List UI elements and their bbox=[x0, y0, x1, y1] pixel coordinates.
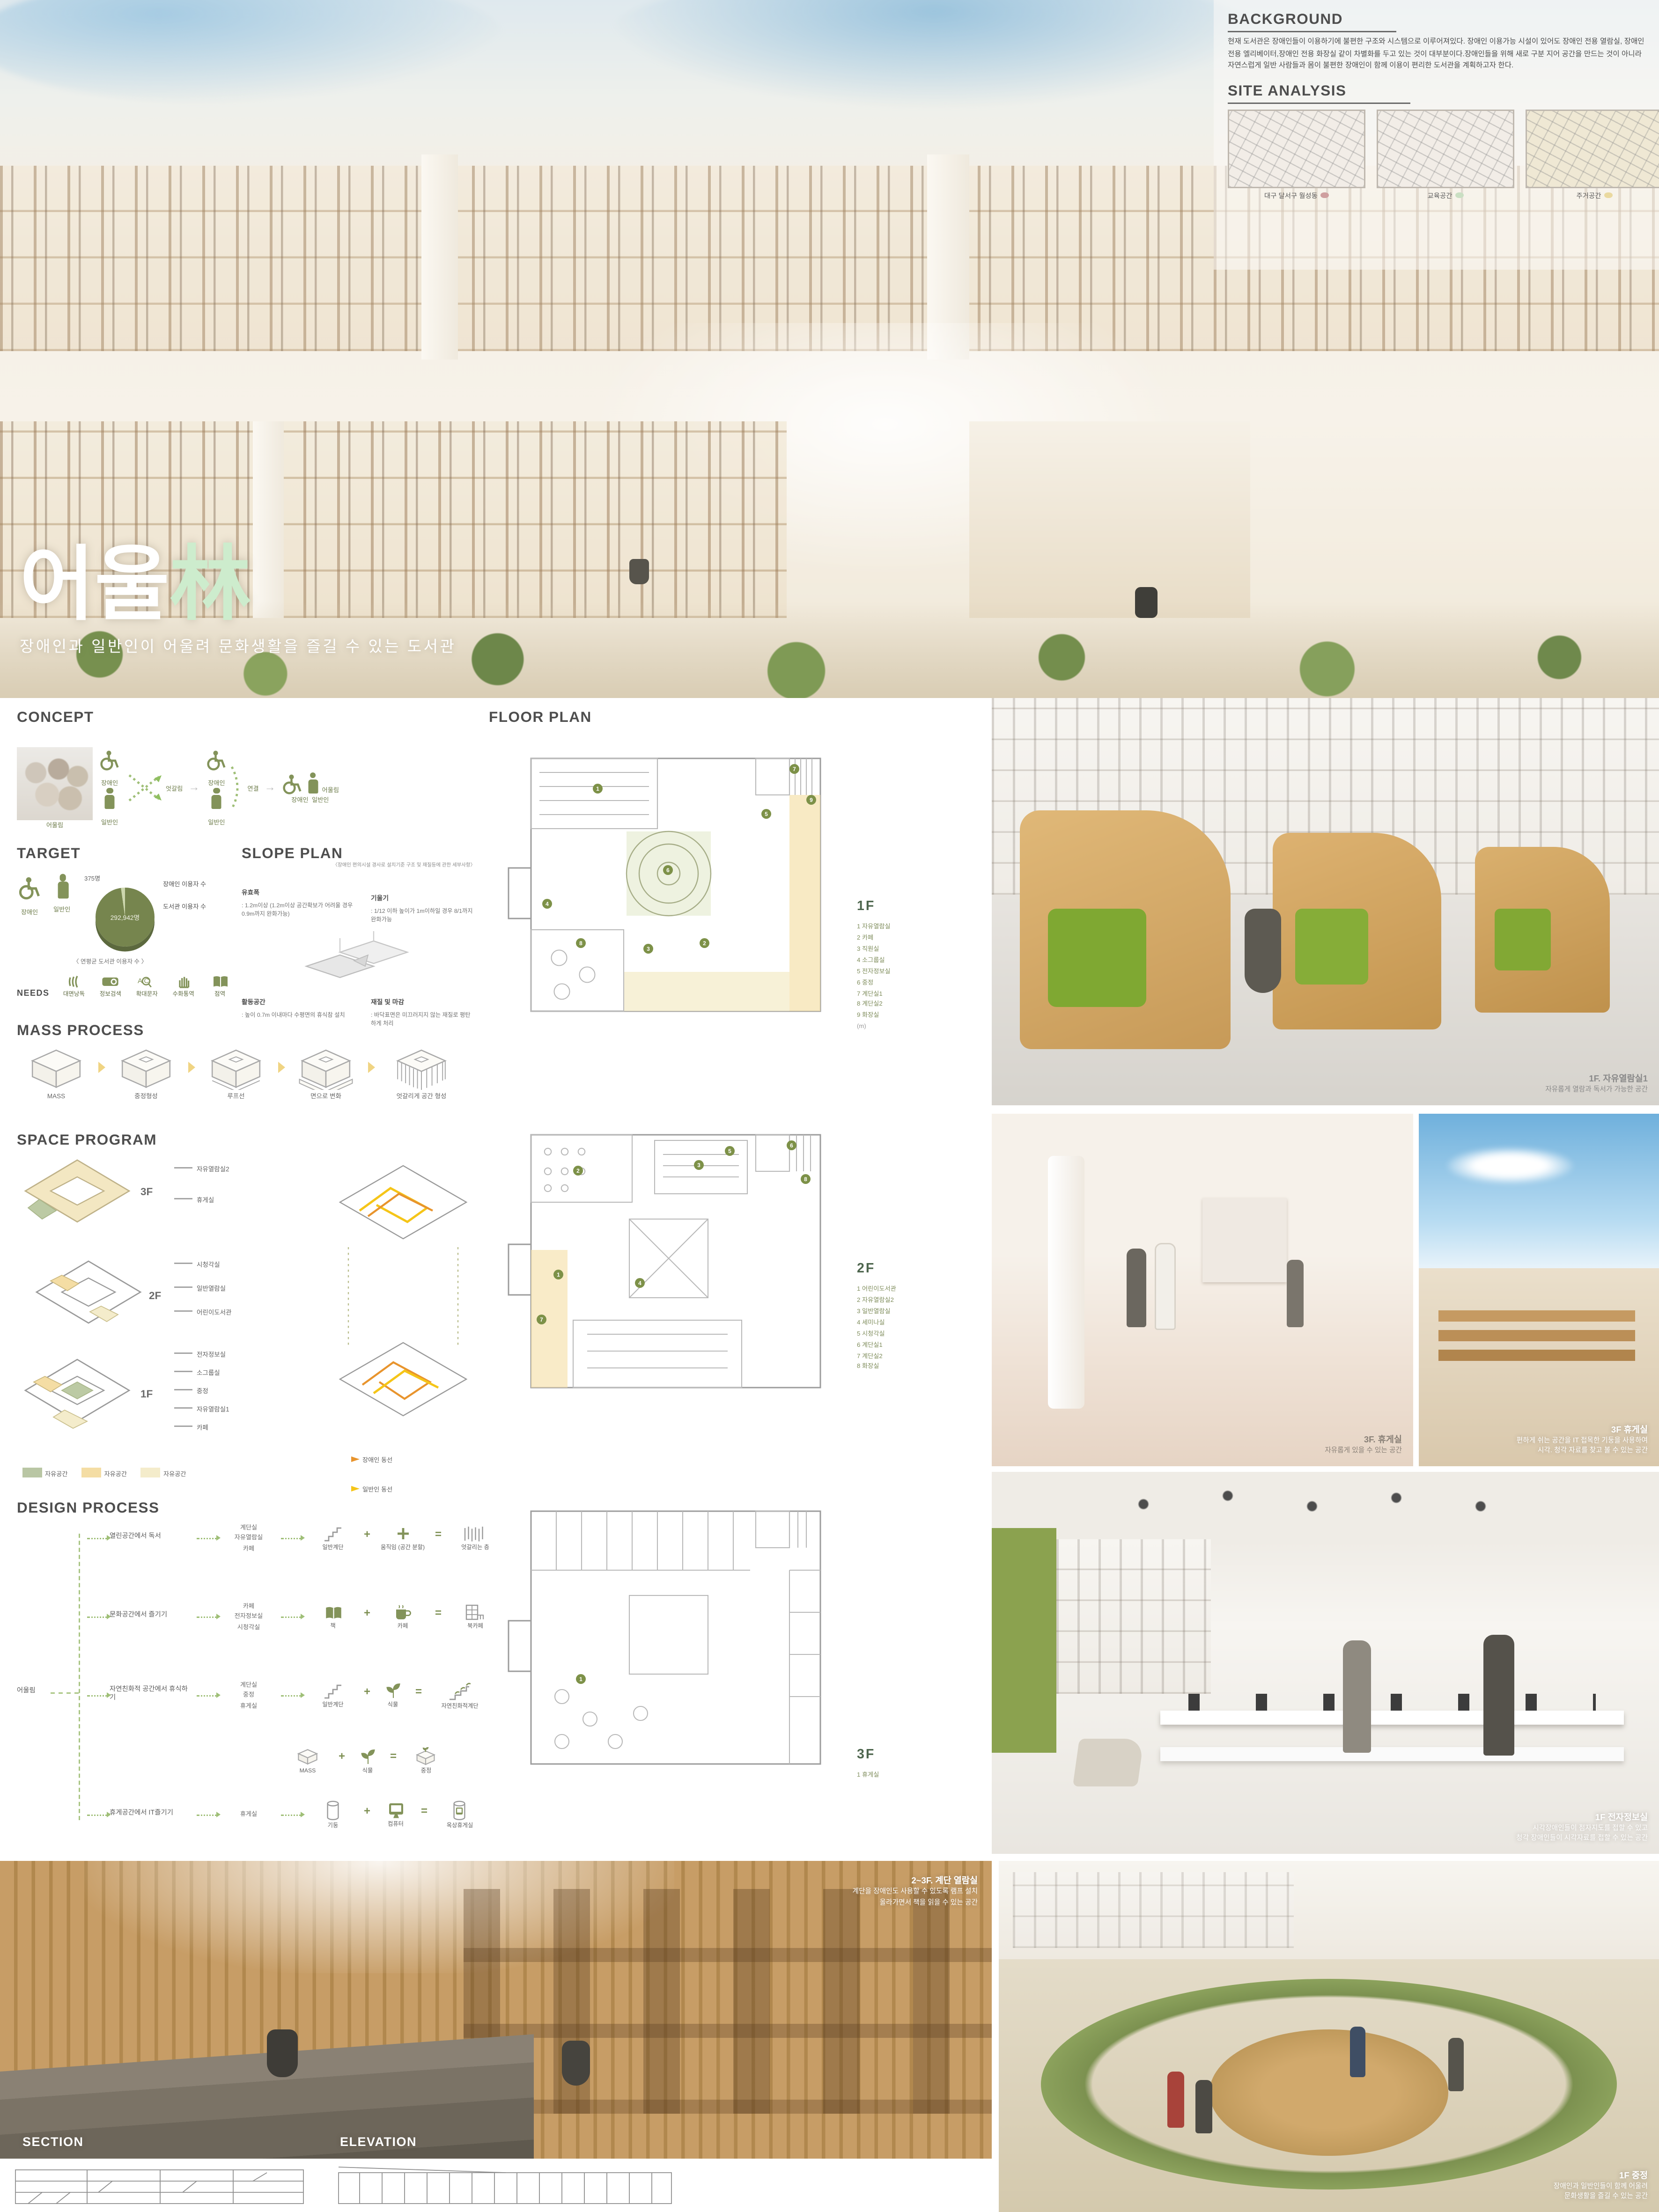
title-hanja: 林 bbox=[170, 539, 251, 631]
legend-item: 1 휴게실 bbox=[857, 1770, 879, 1781]
caption-line: 시각. 청각 자료를 찾고 볼 수 있는 공간 bbox=[1517, 1447, 1648, 1458]
pie-small-value: 375명 bbox=[84, 875, 100, 883]
flow-space: 카페 bbox=[219, 1543, 278, 1554]
render-caption: 3F 휴게실 편하게 쉬는 공간을 IT 접목한 기둥을 사용하여 시각. 청각… bbox=[1517, 1424, 1648, 1458]
plan-marker: 3 bbox=[694, 1160, 704, 1170]
flow-legend-label: 장애인 동선 bbox=[362, 1456, 392, 1463]
site-analysis-maps: 대구 달서구 월성동 교육공간 주거공간 bbox=[1228, 109, 1645, 200]
yellow-arrow-icon bbox=[98, 1062, 105, 1073]
flow-spaces: 휴게실 bbox=[219, 1809, 278, 1820]
site-map-caption: 교육공간 bbox=[1377, 191, 1514, 200]
site-map-caption-text: 교육공간 bbox=[1428, 191, 1453, 200]
formula-result-label: 자연친화적계단 bbox=[441, 1702, 478, 1709]
plan-marker: 7 bbox=[789, 764, 799, 774]
needs-row: NEEDS 대면낭독 정보검색 A C 확대문자 수화통역 점역 bbox=[17, 975, 235, 999]
needs-item: 정보검색 bbox=[96, 975, 125, 999]
flow-row: 열린공간에서 독서 계단실 자유열람실 카페 일반계단 + 움직임 (공간 분할… bbox=[84, 1522, 508, 1554]
render-stair-reading-room: 2~3F. 계단 열람실 계단을 장애인도 사용할 수 있도록 램프 설치 올라… bbox=[0, 1861, 992, 2212]
plan-legend-3f: 1 휴게실 bbox=[857, 1770, 879, 1781]
site-map-image bbox=[1377, 109, 1514, 188]
legend-item: 3 직원실 bbox=[857, 944, 891, 955]
pod-seat-green bbox=[1495, 909, 1551, 970]
slope-desc: : 바닥표면은 미끄러지지 않는 재질로 평탄하게 처리 bbox=[371, 1011, 475, 1029]
formula-b-label: 식물 bbox=[362, 1766, 373, 1773]
formula-result-label: 중정 bbox=[421, 1767, 432, 1774]
swatch-cream bbox=[141, 1468, 161, 1477]
target-general: 일반인 bbox=[53, 875, 70, 914]
design-process-title: DESIGN PROCESS bbox=[17, 1500, 160, 1517]
person-icon bbox=[212, 787, 221, 810]
tablet-stands bbox=[1188, 1694, 1596, 1711]
area-legend-label: 자유공간 bbox=[45, 1470, 68, 1477]
plan-marker: 1 bbox=[593, 784, 603, 794]
formula-result: 자연친화적계단 bbox=[423, 1682, 496, 1709]
legend-item: 6 계단실1 bbox=[857, 1339, 896, 1351]
site-map-item: 대구 달서구 월성동 bbox=[1228, 109, 1365, 200]
site-map-image bbox=[1526, 109, 1659, 188]
project-title: 어울林 bbox=[20, 545, 806, 626]
plan-marker: 6 bbox=[663, 865, 673, 875]
mass-step: 중정형성 bbox=[107, 1045, 185, 1101]
caption-line: 자유롭게 있을 수 있는 공간 bbox=[1325, 1447, 1402, 1458]
bookshel-window bbox=[1013, 1872, 1294, 1948]
room-label: 전자정보실 bbox=[174, 1351, 229, 1360]
swatch-tan bbox=[82, 1468, 102, 1477]
section-drawing bbox=[14, 2164, 309, 2206]
yellow-arrow-icon bbox=[278, 1062, 285, 1073]
pie-big-value: 292,942명 bbox=[96, 914, 155, 923]
render-1f-electronic-info-room: 1F 전자정보실 시각장애인들이 점자지도를 접할 수 있고 청각 장애인들이 … bbox=[992, 1472, 1659, 1854]
pie-big-label: 도서관 이용자 수 bbox=[163, 903, 206, 911]
room-label: 카페 bbox=[174, 1424, 229, 1433]
formula-a: 일반계단 bbox=[303, 1683, 362, 1708]
coffee-cup-icon bbox=[394, 1604, 412, 1621]
slope-desc: : 높이 0.7m 이내마다 수평면의 휴식참 설치 bbox=[242, 1011, 354, 1020]
legend-item: 1 자유열람실 bbox=[857, 921, 891, 933]
wheelchair-icon bbox=[205, 750, 228, 771]
arrow-right-icon bbox=[265, 782, 276, 794]
plan-marker: 4 bbox=[542, 899, 552, 909]
mass-step-label: 루프선 bbox=[227, 1093, 244, 1101]
flow-activity: 자연친화적 공간에서 휴식하기 bbox=[110, 1686, 194, 1705]
pie-small-label: 장애인 이용자 수 bbox=[163, 881, 206, 889]
formula-result-label: 옥상휴게실 bbox=[447, 1822, 473, 1829]
disabled-label: 장애인 bbox=[205, 779, 228, 787]
flow-legend-item: 장애인 동선 bbox=[351, 1444, 392, 1469]
room-label: 어린이도서관 bbox=[174, 1309, 232, 1317]
background-title: BACKGROUND bbox=[1228, 11, 1396, 32]
slope-term: 기울기 bbox=[371, 895, 389, 902]
staggered-slats-icon bbox=[464, 1526, 487, 1543]
movement-icon bbox=[394, 1526, 411, 1543]
wheelchair-icon bbox=[98, 750, 121, 771]
stairs-icon bbox=[323, 1526, 343, 1543]
formula-a-label: 책 bbox=[330, 1622, 335, 1629]
flow-spaces: 계단실 중정 휴게실 bbox=[219, 1680, 278, 1711]
users-pie-chart: 292,942명 bbox=[96, 888, 155, 947]
dotted-arrow-icon bbox=[281, 1537, 301, 1539]
plan-label-2f: 2F bbox=[857, 1261, 875, 1277]
mass-step: 면으로 변화 bbox=[287, 1045, 365, 1101]
concept-cross: 엇갈림 bbox=[126, 772, 183, 803]
mass-process-row: MASS 중정형성 루프선 면으로 변화 엇갈리게 공간 형성 bbox=[17, 1045, 475, 1101]
needs-item-label: 확대문자 bbox=[136, 990, 158, 999]
legend-dot bbox=[1604, 192, 1612, 199]
area-legend-item: 자유공간 bbox=[141, 1458, 186, 1483]
disabled-label: 장애인 bbox=[98, 779, 121, 787]
floor-label-3f: 3F bbox=[140, 1185, 153, 1198]
site-analysis-title: SITE ANALYSIS bbox=[1228, 82, 1410, 103]
plus-sign: + bbox=[364, 1606, 370, 1619]
needs-item: A C 확대문자 bbox=[132, 975, 162, 999]
stairs-icon bbox=[323, 1683, 343, 1700]
plan-marker: 9 bbox=[806, 795, 816, 805]
flow-activity: 휴게공간에서 IT즐기기 bbox=[110, 1810, 194, 1819]
result-sub2: 일반인 bbox=[312, 796, 329, 803]
dotted-arrow-icon bbox=[87, 1616, 107, 1617]
slope-plan-title: SLOPE PLAN bbox=[242, 845, 343, 862]
orange-arrow-icon bbox=[351, 1456, 360, 1462]
display-table bbox=[1160, 1711, 1624, 1725]
speech-icon bbox=[67, 975, 81, 989]
formula-a-label: MASS bbox=[300, 1767, 316, 1774]
formula-a: 일반계단 bbox=[303, 1526, 362, 1551]
render-caption: 1F. 자유열람실1 자유롭게 열람과 독서가 가능한 공간 bbox=[1545, 1073, 1648, 1097]
plan-legend-1f: 1 자유열람실 2 카페 3 직원실 4 소그룹실 5 전자정보실 6 중정 7… bbox=[857, 921, 891, 1033]
caption-title: 1F. 자유열람실1 bbox=[1545, 1073, 1648, 1086]
render-caption: 3F. 휴게실 자유롭게 있을 수 있는 공간 bbox=[1325, 1434, 1402, 1458]
floor-label-2f: 2F bbox=[149, 1289, 161, 1302]
plan-marker: 1 bbox=[553, 1270, 563, 1279]
concept-group-apart: 장애인 일반인 bbox=[98, 750, 121, 827]
formula-b: 식물 bbox=[347, 1748, 389, 1773]
render-3f-lounge-terrace: 3F 휴게실 편하게 쉬는 공간을 IT 접목한 기둥을 사용하여 시각. 청각… bbox=[1419, 1114, 1659, 1466]
room-label: 중정 bbox=[174, 1388, 229, 1396]
site-map-caption: 주거공간 bbox=[1526, 191, 1659, 200]
flow-space: 카페 bbox=[219, 1601, 278, 1611]
equals-sign: = bbox=[435, 1606, 442, 1619]
cross-paths-icon bbox=[126, 772, 163, 803]
flow-space: 계단실 bbox=[219, 1680, 278, 1690]
caption-line: 올라가면서 책을 읽을 수 있는 공간 bbox=[853, 1899, 978, 1910]
slope-term: 활동공간 bbox=[242, 999, 265, 1006]
formula-result: 옥상휴게실 bbox=[429, 1800, 491, 1829]
drawings-strip bbox=[0, 2159, 992, 2212]
rooms-3f: 자유열람실2 휴게실 bbox=[174, 1166, 229, 1205]
bookshelf-wall bbox=[1056, 1539, 1211, 1694]
flow-space: 전자정보실 bbox=[219, 1611, 278, 1622]
disabled-label: 장애인 bbox=[17, 909, 42, 917]
slope-item: 활동공간 : 높이 0.7m 이내마다 수평면의 휴식참 설치 bbox=[242, 986, 354, 1020]
book-icon bbox=[212, 975, 229, 989]
formula-b: 움직임 (공간 분할) bbox=[372, 1526, 434, 1551]
sky bbox=[1419, 1114, 1659, 1268]
needs-item-label: 점역 bbox=[214, 990, 225, 999]
mass-step: 엇갈리게 공간 형성 bbox=[376, 1045, 466, 1101]
yellow-arrow-icon bbox=[351, 1486, 360, 1492]
visitor-figure bbox=[1287, 1260, 1304, 1327]
flow-row-secondary: MASS + 식물 = 중정 bbox=[278, 1747, 454, 1774]
ramp-axon-drawing bbox=[303, 930, 410, 986]
flow-spaces: 카페 전자정보실 시청각실 bbox=[219, 1601, 278, 1632]
link-label: 연결 bbox=[247, 785, 258, 793]
plan-marker: 7 bbox=[537, 1315, 546, 1324]
plan-legend-2f: 1 어린이도서관 2 자유열람실2 3 일반열람실 4 세미나실 5 시청각실 … bbox=[857, 1284, 896, 1373]
plant-icon bbox=[359, 1748, 376, 1765]
legend-item: 2 자유열람실2 bbox=[857, 1295, 896, 1306]
it-column-icon bbox=[453, 1800, 467, 1820]
circulation-axon bbox=[334, 1163, 472, 1438]
needs-item-label: 정보검색 bbox=[100, 990, 121, 999]
column-icon bbox=[326, 1800, 340, 1820]
flow-row: 휴게공간에서 IT즐기기 휴게실 기둥 + 컴퓨터 = 옥상휴게실 bbox=[84, 1800, 491, 1829]
wheelchair-visitor-figure bbox=[1245, 909, 1281, 993]
site-map-item: 주거공간 bbox=[1526, 109, 1659, 200]
slope-plan-diagram: 〈장애인 편의시설 경사로 설치기준 구조 및 재질등에 관한 세부사항〉 유효… bbox=[242, 862, 475, 1020]
area-legend-item: 자유공간 bbox=[82, 1458, 127, 1483]
cloud-shape bbox=[1447, 1147, 1573, 1184]
legend-item: 8 화장실 bbox=[857, 1361, 896, 1373]
legend-item: 9 화장실 bbox=[857, 1010, 891, 1021]
link-arc-icon bbox=[230, 764, 244, 812]
photographer-figure bbox=[1135, 587, 1158, 618]
formula-a: MASS bbox=[278, 1747, 337, 1774]
legend-dot bbox=[1455, 192, 1463, 199]
visitor-figure bbox=[1350, 2027, 1365, 2077]
legend-item: 3 일반열람실 bbox=[857, 1306, 896, 1317]
formula-b-label: 컴퓨터 bbox=[388, 1820, 404, 1827]
plan-drawing-1f bbox=[489, 733, 840, 1031]
sky-shape bbox=[604, 0, 1264, 110]
green-accent-wall bbox=[992, 1528, 1056, 1753]
flow-activity: 열린공간에서 독서 bbox=[110, 1534, 194, 1543]
formula-b-label: 움직임 (공간 분할) bbox=[381, 1544, 425, 1551]
visitor-figure bbox=[1483, 1635, 1514, 1756]
plant-icon bbox=[384, 1683, 401, 1700]
caption-line: 편하게 쉬는 공간을 IT 접목한 기둥을 사용하여 bbox=[1517, 1436, 1648, 1447]
background-body: 현재 도서관은 장애인들이 이용하기에 불편한 구조와 시스템으로 이루어져있다… bbox=[1228, 37, 1645, 73]
caption-line: 시각장애인들이 점자지도를 접할 수 있고 bbox=[1516, 1824, 1648, 1835]
site-map-caption-text: 대구 달서구 월성동 bbox=[1264, 191, 1318, 200]
plan-marker: 5 bbox=[725, 1146, 735, 1156]
hero-render: 어울林 장애인과 일반인이 어울려 문화생활을 즐길 수 있는 도서관 BACK… bbox=[0, 0, 1659, 698]
legend-item: 4 세미나실 bbox=[857, 1317, 896, 1328]
concept-diagram: 어울림 장애인 일반인 엇갈림 장애인 일반인 연결 bbox=[17, 736, 475, 840]
render-caption: 1F 중정 장애인과 일반인들이 함께 어울려 문화생활을 즐길 수 있는 공간 bbox=[1554, 2169, 1648, 2204]
legend-dot bbox=[1320, 192, 1329, 199]
slope-plan-note: 〈장애인 편의시설 경사로 설치기준 구조 및 재질등에 관한 세부사항〉 bbox=[332, 862, 475, 869]
book-icon bbox=[324, 1605, 342, 1620]
lounge-chair bbox=[1073, 1739, 1144, 1786]
gallery-panel bbox=[1202, 1198, 1287, 1282]
yellow-arrow-icon bbox=[188, 1062, 195, 1073]
floor-plan-2f: 1 2 3 4 5 6 7 8 2F 1 어린이도서관 2 자유열람실2 3 일… bbox=[489, 1110, 983, 1472]
hero-stair-block bbox=[969, 421, 1250, 618]
needs-item-label: 대면낭독 bbox=[63, 990, 85, 999]
caption-line: 장애인과 일반인들이 함께 어울려 bbox=[1554, 2182, 1648, 2193]
mass-cube-plane-icon bbox=[295, 1045, 357, 1090]
general-label: 일반인 bbox=[98, 818, 121, 827]
photo-caption: 어울림 bbox=[17, 821, 93, 830]
plan-marker: 3 bbox=[643, 944, 653, 954]
formula-b: 카페 bbox=[372, 1604, 434, 1630]
floor-label-1f: 1F bbox=[140, 1388, 153, 1400]
visitor-figure bbox=[1155, 1243, 1176, 1330]
space-program-title: SPACE PROGRAM bbox=[17, 1132, 157, 1149]
section-label: SECTION bbox=[22, 2135, 84, 2149]
result-sub1: 장애인 bbox=[291, 796, 308, 803]
room-label: 시청각실 bbox=[174, 1261, 232, 1270]
flow-trunk-line bbox=[79, 1534, 80, 1820]
needs-item: 수화통역 bbox=[169, 975, 198, 999]
room-label: 자유열람실2 bbox=[174, 1166, 229, 1174]
equals-sign: = bbox=[415, 1685, 422, 1698]
axon-3f bbox=[22, 1157, 132, 1242]
floor-plan-1f: 1 2 3 4 5 6 7 8 9 1F 1 자유열람실 2 카페 3 직원실 … bbox=[489, 733, 983, 1095]
concept-group-together: 어울림 장애인 일반인 bbox=[281, 772, 339, 804]
plan-marker: 2 bbox=[700, 938, 709, 948]
render-1f-reading-room: 1F. 자유열람실1 자유롭게 열람과 독서가 가능한 공간 bbox=[992, 698, 1659, 1105]
legend-item: 1 어린이도서관 bbox=[857, 1284, 896, 1295]
rooms-1f: 전자정보실 소그룹실 중정 자유열람실1 카페 bbox=[174, 1351, 229, 1433]
area-legend-item: 자유공간 bbox=[22, 1458, 68, 1483]
mass-cube-icon bbox=[25, 1045, 87, 1090]
flow-space: 시청각실 bbox=[219, 1622, 278, 1632]
target-disabled: 장애인 bbox=[17, 876, 42, 917]
design-process-flow: 어울림 열린공간에서 독서 계단실 자유열람실 카페 일반계단 + 움직임 (공… bbox=[17, 1522, 475, 1854]
plus-sign: + bbox=[339, 1750, 345, 1763]
arrow-right-icon bbox=[188, 782, 199, 794]
flow-space: 계단실 bbox=[219, 1522, 278, 1533]
slope-desc: : 1.2m이상 (1.2m이상 공간확보가 어려울 경우 0.9m까지 완화가… bbox=[242, 902, 354, 919]
formula-a-label: 일반계단 bbox=[322, 1701, 343, 1708]
slope-item: 재질 및 마감 : 바닥표면은 미끄러지지 않는 재질로 평탄하게 처리 bbox=[371, 986, 475, 1029]
formula-result: 중정 bbox=[398, 1747, 454, 1774]
render-caption: 2~3F. 계단 열람실 계단을 장애인도 사용할 수 있도록 램프 설치 올라… bbox=[853, 1875, 978, 1909]
caption-title: 1F 전자정보실 bbox=[1516, 1811, 1648, 1824]
mass-cube-roofline-icon bbox=[205, 1045, 267, 1090]
mass-step-label: MASS bbox=[47, 1093, 65, 1101]
formula-b-label: 카페 bbox=[398, 1623, 408, 1630]
dotted-arrow-icon bbox=[197, 1616, 216, 1617]
plan-marker: 2 bbox=[573, 1166, 583, 1176]
mass-cube-slats-icon bbox=[388, 1045, 455, 1090]
plan-label-3f: 3F bbox=[857, 1747, 875, 1763]
mass-step-label: 엇갈리게 공간 형성 bbox=[397, 1093, 447, 1101]
elevation-drawing bbox=[337, 2164, 674, 2206]
dotted-arrow-icon bbox=[87, 1537, 107, 1539]
shelf-openings bbox=[464, 1889, 992, 2114]
formula-a: 책 bbox=[303, 1605, 362, 1629]
floor-plan-3f: 1 3F 1 휴게실 bbox=[489, 1486, 983, 1848]
courtyard-box-icon bbox=[415, 1747, 437, 1765]
architecture-presentation-board: 어울林 장애인과 일반인이 어울려 문화생활을 즐길 수 있는 도서관 BACK… bbox=[0, 0, 1659, 2212]
plan-marker: 8 bbox=[576, 938, 586, 948]
legend-item: 2 카페 bbox=[857, 933, 891, 944]
space-program-diagram: 3F 자유열람실2 휴게실 2F 시청각실 일반열람실 어린이도서관 1F 전자… bbox=[17, 1154, 475, 1489]
mass-step: MASS bbox=[17, 1045, 96, 1101]
caption-line: 청각 장애인들이 시각자료를 접할 수 있는 공간 bbox=[1516, 1835, 1648, 1845]
wheelchair-icon bbox=[17, 876, 42, 900]
site-map-image bbox=[1228, 109, 1365, 188]
plan-marker: 5 bbox=[761, 809, 771, 819]
slope-term: 유효폭 bbox=[242, 889, 259, 896]
reading-table bbox=[1438, 1310, 1635, 1322]
caption-title: 3F. 휴게실 bbox=[1325, 1434, 1402, 1447]
render-courtyard: 1F 중정 장애인과 일반인들이 함께 어울려 문화생활을 즐길 수 있는 공간 bbox=[999, 1861, 1659, 2212]
room-label: 휴게실 bbox=[174, 1197, 229, 1205]
person-icon bbox=[308, 772, 318, 794]
visitor-figure bbox=[1195, 2080, 1212, 2133]
pie-caption: 〈 연평균 도서관 이용자 수 〉 bbox=[73, 958, 147, 966]
flow-spaces: 계단실 자유열람실 카페 bbox=[219, 1522, 278, 1554]
scale-note: (m) bbox=[857, 1021, 891, 1033]
legend-item: 5 전자정보실 bbox=[857, 966, 891, 977]
caption-line: 계단을 장애인도 사용할 수 있도록 램프 설치 bbox=[853, 1888, 978, 1899]
plan-marker: 6 bbox=[787, 1140, 796, 1150]
mass-cube-icon bbox=[296, 1747, 319, 1765]
axon-2f bbox=[34, 1258, 143, 1343]
visitor-figure bbox=[1167, 2072, 1184, 2128]
needs-label: NEEDS bbox=[17, 990, 50, 999]
mass-cube-courtyard-icon bbox=[115, 1045, 177, 1090]
visitor-figure bbox=[1448, 2038, 1464, 2091]
room-label: 자유열람실1 bbox=[174, 1406, 229, 1414]
plus-sign: + bbox=[364, 1685, 370, 1698]
flow-row: 문화공간에서 즐기기 카페 전자정보실 시청각실 책 + 카페 = 북카페 bbox=[84, 1601, 508, 1632]
dotted-arrow-icon bbox=[197, 1814, 216, 1815]
poster-canvas: 어울林 장애인과 일반인이 어울려 문화생활을 즐길 수 있는 도서관 BACK… bbox=[0, 0, 1659, 2212]
formula-result-label: 엇갈리는 층 bbox=[461, 1544, 489, 1551]
sky-shape bbox=[0, 0, 506, 104]
elevation-label: ELEVATION bbox=[340, 2135, 417, 2149]
needs-item: 점역 bbox=[205, 975, 235, 999]
dotted-arrow-icon bbox=[281, 1616, 301, 1617]
visitor-figure bbox=[1343, 1640, 1371, 1753]
pod-seat-green bbox=[1048, 909, 1146, 1007]
yellow-arrow-icon bbox=[368, 1062, 375, 1073]
legend-item: 5 시청각실 bbox=[857, 1328, 896, 1339]
mass-step-label: 면으로 변화 bbox=[310, 1093, 341, 1101]
formula-a-label: 기둥 bbox=[328, 1822, 339, 1829]
area-legend-label: 자유공간 bbox=[104, 1470, 127, 1477]
general-label: 일반인 bbox=[205, 818, 228, 827]
flow-root-label: 어울림 bbox=[17, 1688, 36, 1698]
search-bar-icon bbox=[101, 975, 119, 989]
flow-root-connector bbox=[51, 1692, 79, 1694]
legend-item: 6 중정 bbox=[857, 977, 891, 988]
flow-legend: 장애인 동선 일반인 동선 bbox=[351, 1444, 392, 1499]
caption-title: 2~3F. 계단 열람실 bbox=[853, 1875, 978, 1888]
wheelchair-visitor-figure bbox=[562, 2041, 590, 2086]
wheelchair-icon bbox=[281, 773, 304, 794]
plan-drawing-3f bbox=[489, 1486, 840, 1784]
dotted-arrow-icon bbox=[281, 1814, 301, 1815]
computer-icon bbox=[387, 1802, 404, 1819]
target-title: TARGET bbox=[17, 845, 81, 862]
legend-item: 7 계단실2 bbox=[857, 1351, 896, 1362]
floor-plan-title: FLOOR PLAN bbox=[489, 709, 592, 726]
axon-1f bbox=[22, 1357, 132, 1441]
plus-sign: + bbox=[364, 1528, 370, 1540]
rooms-2f: 시청각실 일반열람실 어린이도서관 bbox=[174, 1261, 232, 1317]
equals-sign: = bbox=[421, 1804, 428, 1817]
flow-legend-label: 일반인 동선 bbox=[362, 1486, 392, 1493]
caption-line: 자유롭게 열람과 독서가 가능한 공간 bbox=[1545, 1086, 1648, 1097]
room-label: 소그룹실 bbox=[174, 1369, 229, 1378]
visitor-figure bbox=[1127, 1249, 1146, 1327]
render-3f-lounge: 3F. 휴게실 자유롭게 있을 수 있는 공간 bbox=[992, 1114, 1413, 1466]
